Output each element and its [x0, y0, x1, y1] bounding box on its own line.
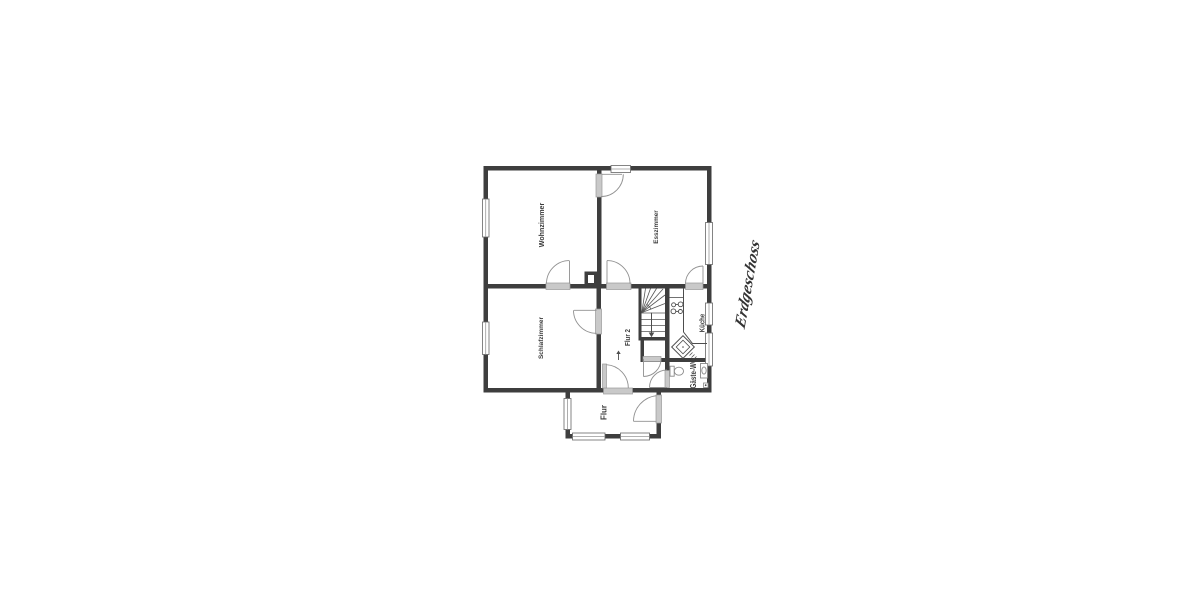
- svg-text:Gäste-WC: Gäste-WC: [688, 359, 698, 389]
- svg-text:Schlafzimmer: Schlafzimmer: [538, 317, 545, 359]
- svg-text:Küche: Küche: [700, 314, 707, 333]
- svg-text:Wohnzimmer: Wohnzimmer: [539, 202, 546, 247]
- svg-text:Flur: Flur: [600, 405, 609, 420]
- svg-text:Flur 2: Flur 2: [625, 329, 632, 346]
- svg-text:Esszimmer: Esszimmer: [653, 210, 660, 244]
